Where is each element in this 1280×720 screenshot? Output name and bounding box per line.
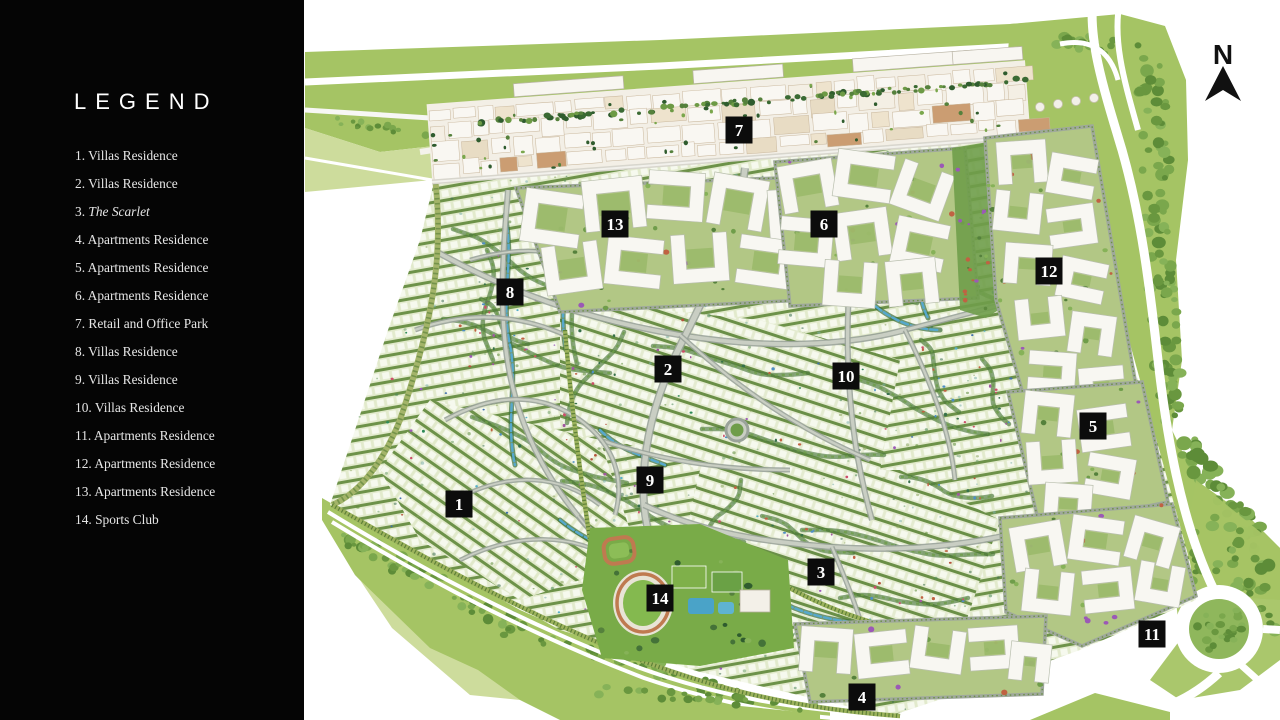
svg-text:4: 4 — [858, 688, 867, 707]
svg-text:12: 12 — [1041, 262, 1058, 281]
svg-text:2: 2 — [664, 360, 673, 379]
svg-text:8: 8 — [506, 283, 515, 302]
svg-text:6: 6 — [820, 215, 829, 234]
svg-text:10: 10 — [838, 367, 855, 386]
svg-text:14: 14 — [652, 589, 670, 608]
svg-text:5: 5 — [1089, 417, 1098, 436]
svg-text:N: N — [1213, 39, 1233, 70]
svg-text:11: 11 — [1144, 625, 1160, 644]
svg-text:3: 3 — [817, 563, 826, 582]
svg-text:13: 13 — [607, 215, 624, 234]
svg-text:1: 1 — [455, 495, 464, 514]
svg-text:7: 7 — [735, 121, 744, 140]
svg-text:9: 9 — [646, 471, 655, 490]
